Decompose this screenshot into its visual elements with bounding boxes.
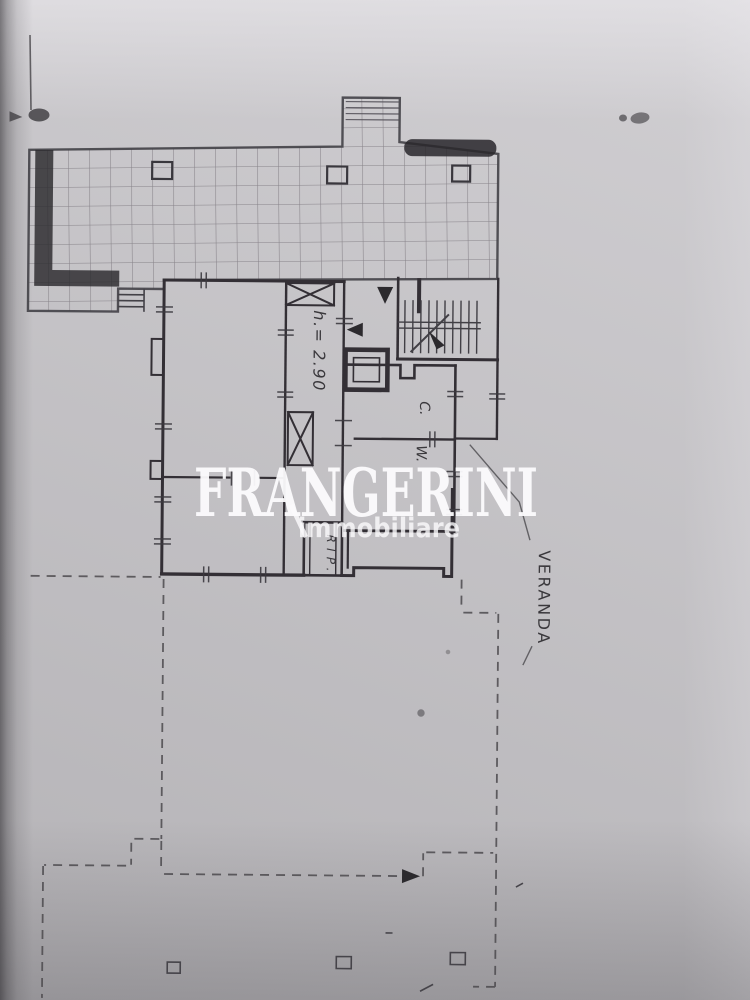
veranda-label: VERANDA [534, 550, 554, 645]
ink-blot [29, 109, 49, 121]
terrace-steps [118, 289, 144, 312]
smudge-dot [620, 115, 627, 121]
boundary-arrow [402, 869, 420, 883]
entry-arrow-left [347, 323, 363, 337]
lift-box [345, 350, 387, 390]
roof-terrace [21, 88, 509, 322]
scanned-floorplan-photo: VERANDA h.= 2.90 C. W. RIP. FRANGERINI i… [0, 0, 750, 1000]
plan-group: VERANDA h.= 2.90 C. W. RIP. [15, 88, 558, 1000]
entry-arrow-down [377, 287, 393, 304]
boundary-pillars [167, 880, 523, 992]
pen-line-artifact [30, 35, 31, 110]
kitchen-label: C. [416, 401, 432, 415]
speck [446, 650, 450, 654]
elevator-shaft [286, 283, 334, 305]
speck [418, 710, 424, 716]
watermark-tagline: immobiliare [298, 513, 460, 544]
watermark-logo: FRANGERINI immobiliare [194, 454, 538, 544]
terrace-tile-grid [21, 88, 509, 322]
leader-line [523, 646, 532, 665]
veranda-dashed-boundary [27, 576, 499, 1000]
small-arrow-mark [10, 112, 21, 121]
dark-beam [404, 139, 496, 157]
smudge-mark [630, 112, 649, 124]
staircase [398, 300, 481, 354]
ceiling-height-label: h.= 2.90 [309, 310, 329, 390]
floorplan-drawing: VERANDA h.= 2.90 C. W. RIP. FRANGERINI i… [0, 0, 750, 1000]
